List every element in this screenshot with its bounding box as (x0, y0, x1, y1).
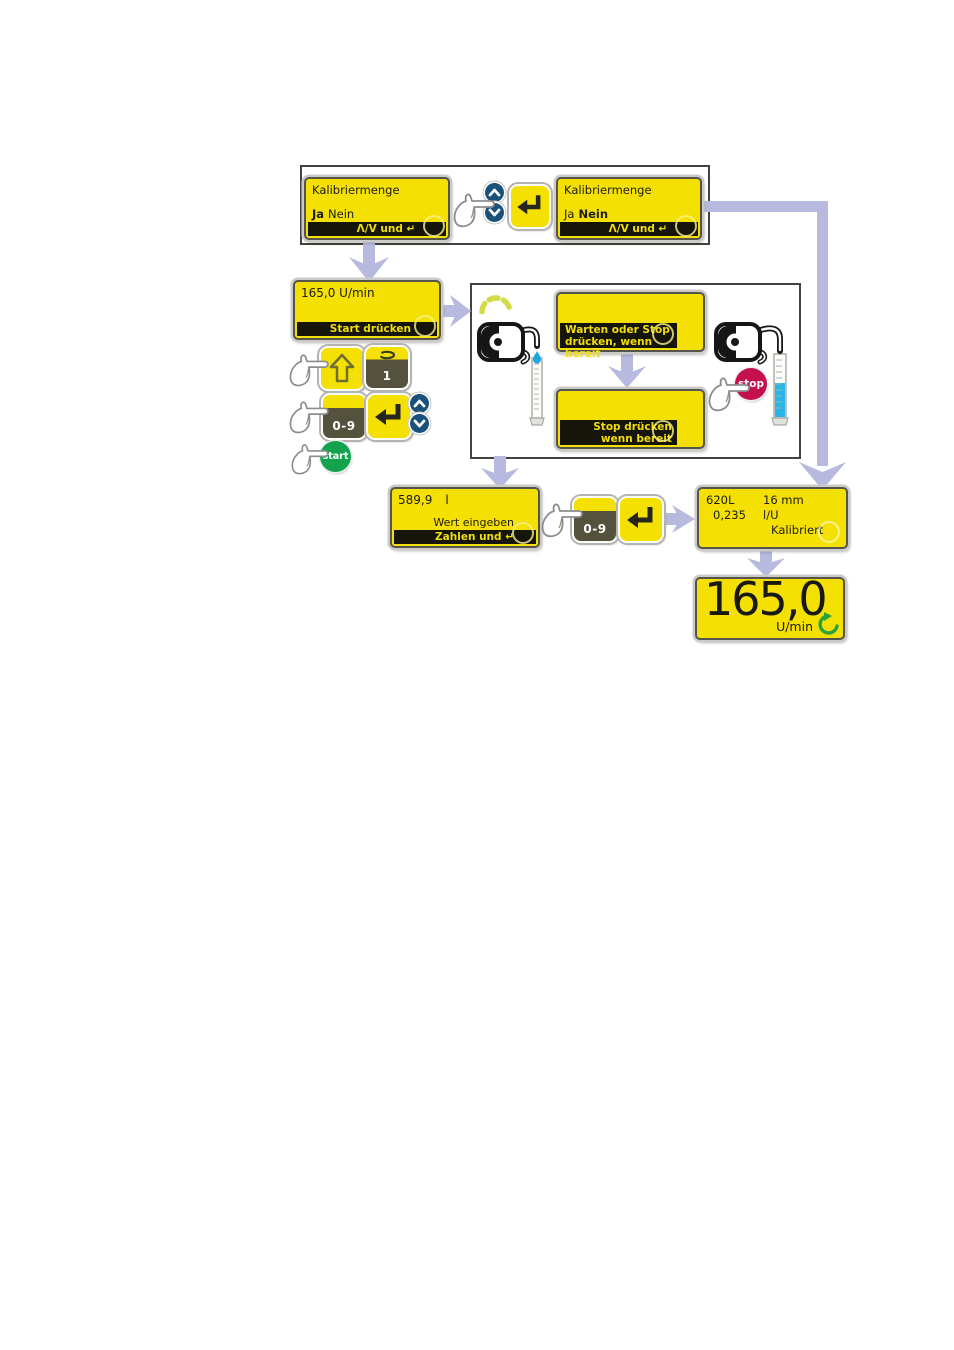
hand-pointer-icon (537, 500, 583, 540)
display-title: Kalibriermenge (312, 183, 400, 197)
chevron-up-icon (410, 394, 429, 413)
option-ja: Ja (564, 207, 574, 221)
display-options: JaNein (564, 207, 612, 221)
up-arrow-button (410, 394, 429, 413)
hand-pointer-icon (704, 374, 750, 414)
display-final-speed: 165,0 U/min (695, 577, 845, 640)
blink-indicator-ring (423, 215, 445, 237)
hand-pointer-icon (449, 190, 495, 230)
display-options: JaNein (312, 207, 354, 221)
display-calibration-result: 620L 16 mm 0,235 l/U Kalibriert (697, 487, 848, 549)
pump-icon-dosing (477, 315, 547, 367)
display-kalibriermenge-nein: Kalibriermenge JaNein Λ/V und ↵ (556, 177, 702, 240)
down-arrow-button (410, 414, 429, 433)
rotation-running-icon (816, 612, 842, 636)
value-unit: l (445, 493, 448, 507)
liquid-level (775, 383, 785, 417)
blink-indicator-ring (414, 315, 436, 337)
chevron-down-icon (410, 414, 429, 433)
enter-key (618, 496, 664, 543)
hand-pointer-icon (286, 441, 330, 477)
final-speed-value: 165,0 (704, 572, 826, 626)
result-tube-size: 16 mm (763, 493, 804, 507)
hand-pointer-icon (284, 351, 330, 389)
entered-value: 589,9l (398, 493, 449, 507)
enter-icon (368, 395, 410, 438)
loop-mode-icon (366, 349, 408, 361)
down-flow-arrow (347, 236, 391, 282)
rotation-direction-arc (478, 294, 514, 314)
manual-page: Kalibriermenge JaNein Λ/V und ↵ Kalibrie… (0, 0, 954, 1350)
key-label: 1 (366, 369, 408, 383)
result-volume-per-rev: 0,235 (713, 508, 746, 522)
mode-1-key: 1 (364, 345, 410, 390)
enter-icon (511, 186, 549, 227)
blink-indicator-ring (652, 420, 674, 442)
down-flow-arrow (479, 456, 521, 489)
enter-key (366, 393, 412, 440)
speed-value: 165,0 U/min (301, 286, 375, 300)
display-value-entry: 589,9l Wert eingeben Zahlen und ↵ (390, 487, 540, 548)
final-speed-unit: U/min (776, 619, 813, 634)
display-kalibriermenge-ja: Kalibriermenge JaNein Λ/V und ↵ (304, 177, 450, 240)
right-flow-arrow (661, 503, 695, 535)
blink-indicator-ring (512, 522, 534, 544)
blink-indicator-ring (818, 521, 840, 543)
value-number: 589,9 (398, 493, 432, 507)
display-speed: 165,0 U/min Start drücken (293, 280, 441, 340)
enter-icon (620, 498, 662, 541)
blink-indicator-ring (652, 323, 674, 345)
result-volume-unit: l/U (763, 508, 779, 522)
hand-pointer-icon (284, 398, 330, 436)
drop-icon (533, 351, 541, 364)
result-status: Kalibriert (771, 523, 823, 537)
pump-icon-filling (714, 315, 794, 367)
option-ja-selected: Ja (312, 207, 324, 221)
display-warten: Warten oder Stop drücken, wenn bereit (556, 292, 705, 352)
blink-indicator-ring (675, 215, 697, 237)
display-stop-druecken: Stop drücken wenn bereit (556, 389, 705, 449)
display-title: Kalibriermenge (564, 183, 652, 197)
option-nein-selected: Nein (578, 207, 608, 221)
right-flow-arrow (438, 293, 471, 329)
option-nein: Nein (328, 207, 354, 221)
enter-key (509, 184, 551, 229)
result-pumphead: 620L (706, 493, 734, 507)
entry-hint: Wert eingeben (433, 516, 514, 529)
